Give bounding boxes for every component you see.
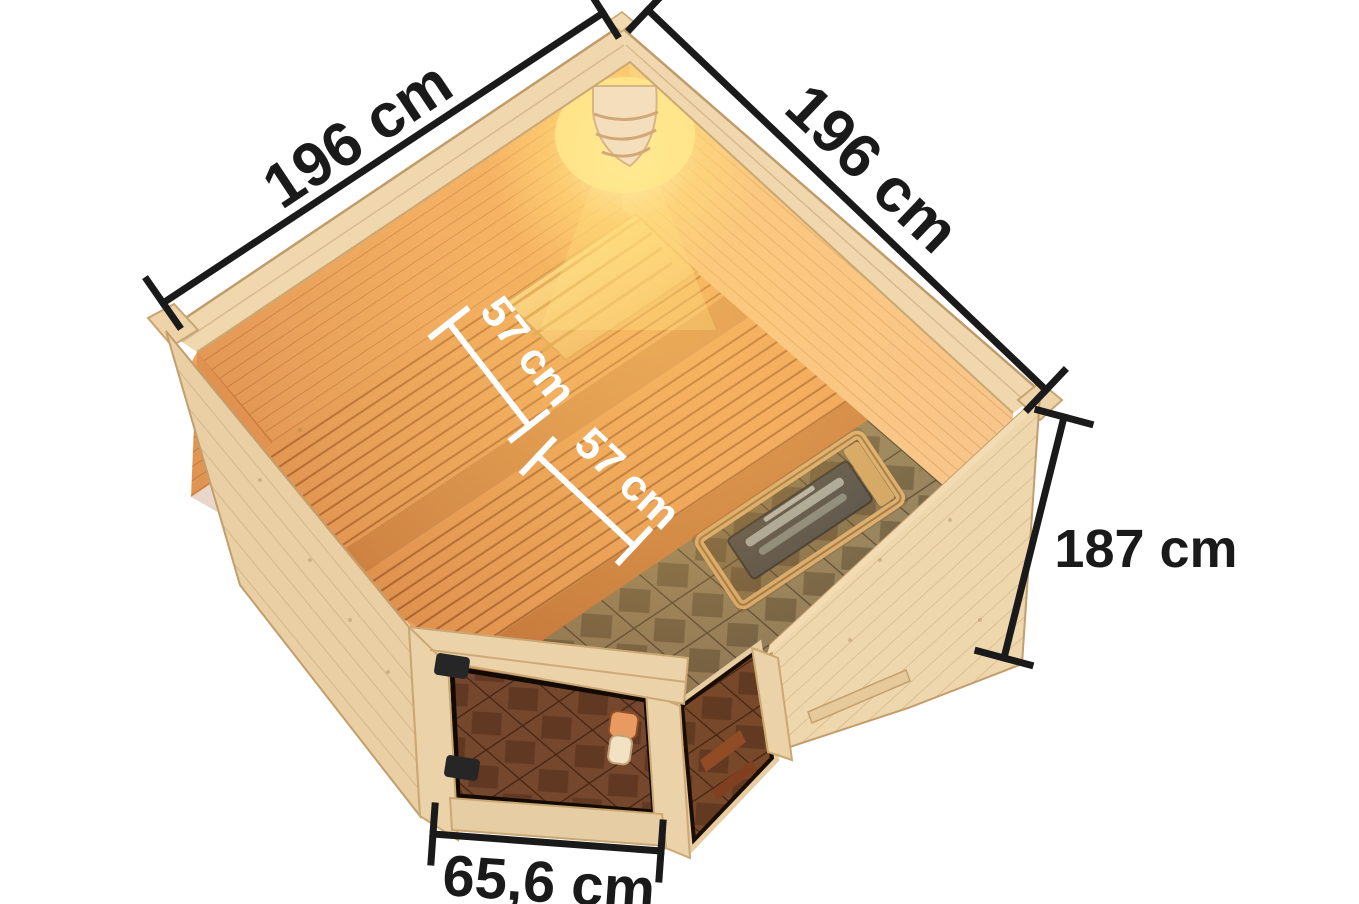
sauna-door xyxy=(409,627,690,858)
product-dimension-diagram: 57 cm 57 cm 196 cm 196 cm 187 cm 65,6 cm xyxy=(0,0,1359,904)
height-label: 187 cm xyxy=(1054,519,1237,579)
door-width-label: 65,6 cm xyxy=(441,843,658,904)
sauna-diagram-svg: 57 cm 57 cm 196 cm 196 cm 187 cm 65,6 cm xyxy=(0,0,1359,904)
